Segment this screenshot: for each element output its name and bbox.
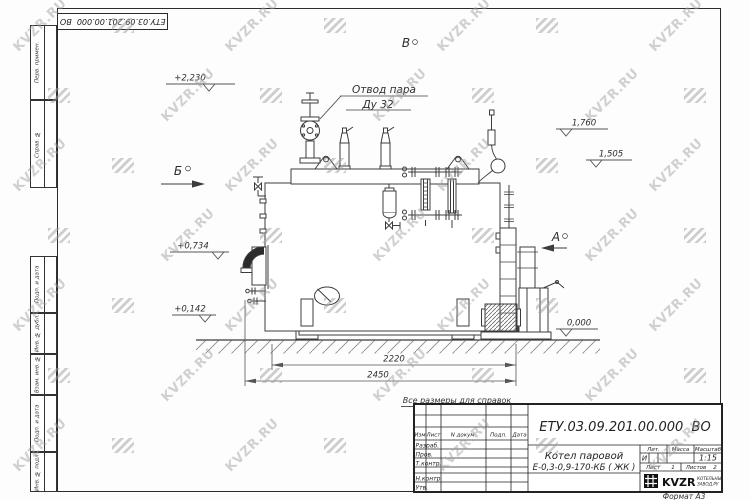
product-name-line2: Е-0,3-0,9-170-КБ ( ЖК ) [533,463,636,473]
col-doc: N докум. [451,433,477,439]
steam-outlet-valve [300,93,320,163]
company-line2: ЗАВОД.РУ [697,482,719,487]
scale-value: 1:15 [699,454,717,463]
company-line1: КОТЕЛЬНЫЙ [697,476,723,481]
dimension-2220: 2220 [383,355,405,365]
view-marker-b: Б [174,164,182,178]
callout-du32: Ду 32 [361,99,393,111]
row-tkontr: Т.контр. [416,461,442,468]
sheets-value: 2 [713,465,717,471]
title-designation: ЕТУ.03.09.201.00.000 ВО [539,420,710,435]
drawing-sheet: Перв. примен. Справ. № Подп. и дата Инв.… [0,0,750,500]
col-list: Лист [426,433,442,439]
view-marker-v: В [402,36,410,50]
elevation-0142: +0,142 [174,305,205,315]
mass-label: Масса [672,447,690,453]
format-label: Формат А3 [628,492,740,500]
elevation-1505: 1,505 [599,150,623,160]
title-block: ЕТУ.03.09.201.00.000 ВО Изм Лист N докум… [413,403,723,493]
sheet-value: 1 [671,465,675,471]
elevation-0000: 0,000 [567,319,591,329]
drain-tap [253,177,266,196]
lit-label: Лит. [646,447,660,453]
product-name-line1: Котел паровой [545,451,624,462]
col-izm: Изм [414,433,425,439]
elevation-1760: 1,760 [572,119,596,129]
company-name: KVZR [662,476,696,489]
safety-valves [339,128,391,169]
ground-hatch [196,341,600,354]
row-utv: Утв. [416,485,429,492]
row-razrab: Разраб. [416,443,440,450]
col-data: Дата [511,433,527,439]
col-podp: Подп. [490,433,507,439]
scale-label: Масштаб [695,447,722,453]
row-nkontr: Н.контр. [416,476,443,483]
elevation-2230: +2,230 [174,74,205,84]
dimension-2450: 2450 [367,371,389,381]
row-prov: Пров. [416,452,434,459]
burner [241,245,268,305]
view-b-arrow [192,180,205,187]
sheet-label: Лист [645,465,661,471]
view-a-arrow [541,244,554,251]
view-marker-a: А [551,230,560,244]
sheets-label: Листов [685,465,707,471]
pressure-gauge-siphon [478,110,505,183]
lit-value: И [642,455,648,463]
elevation-0734: +0,734 [177,242,208,252]
callout-steam-outlet: Отвод пара [352,84,416,96]
fan-duct [517,247,564,289]
